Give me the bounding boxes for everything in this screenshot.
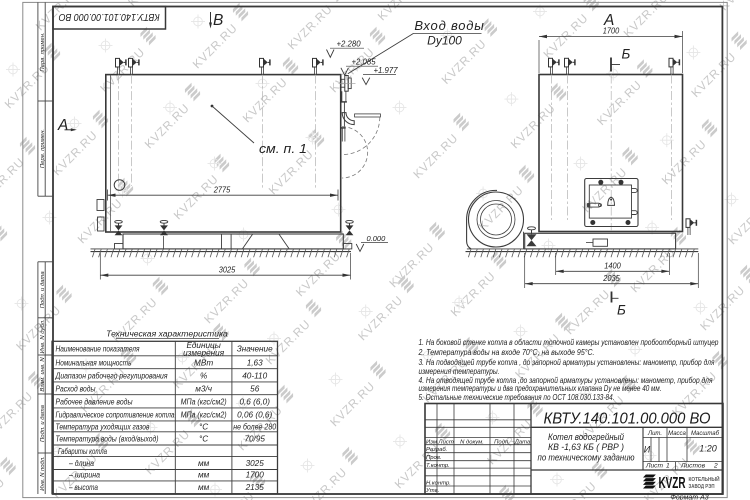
svg-text:Формат А3: Формат А3 xyxy=(670,495,708,500)
svg-text:Лит.: Лит. xyxy=(647,431,662,437)
svg-text:1700: 1700 xyxy=(246,471,265,480)
svg-text:+2.280: +2.280 xyxy=(337,40,362,49)
svg-text:Н.контр.: Н.контр. xyxy=(426,480,451,486)
svg-text:KVZR.RU: KVZR.RU xyxy=(448,269,498,319)
svg-text:Рабочее давление воды: Рабочее давление воды xyxy=(56,397,133,406)
svg-text:Dy100: Dy100 xyxy=(427,34,462,48)
svg-text:N докум.: N докум. xyxy=(460,440,484,446)
svg-text:KVZR.RU: KVZR.RU xyxy=(142,101,192,151)
svg-text:KVZR.RU: KVZR.RU xyxy=(540,11,590,61)
svg-text:KVZR.RU: KVZR.RU xyxy=(171,172,221,222)
svg-text:+1.977: +1.977 xyxy=(374,66,399,75)
svg-text:МВт: МВт xyxy=(194,358,213,367)
svg-text:мм: мм xyxy=(198,471,210,480)
svg-text:KVZR.RU: KVZR.RU xyxy=(0,389,36,439)
svg-text:1:20: 1:20 xyxy=(699,444,717,454)
svg-text:не более 280: не более 280 xyxy=(233,423,276,432)
svg-text:1400: 1400 xyxy=(604,261,621,271)
svg-text:KVZR.RU: KVZR.RU xyxy=(628,245,678,295)
svg-text:5. Остальные технические треб: 5. Остальные технические требования по О… xyxy=(419,392,615,402)
svg-text:по техническому заданию: по техническому заданию xyxy=(538,453,635,463)
svg-text:Вход воды: Вход воды xyxy=(414,18,484,33)
svg-text:KVZR.RU: KVZR.RU xyxy=(240,75,290,125)
svg-text:Лист: Лист xyxy=(645,463,663,470)
svg-text:KVZR.RU: KVZR.RU xyxy=(97,45,147,95)
svg-text:KVZR.RU: KVZR.RU xyxy=(201,276,251,326)
svg-text:KVZR.RU: KVZR.RU xyxy=(285,2,335,52)
svg-text:МПа (кгс/см2): МПа (кгс/см2) xyxy=(181,411,227,420)
svg-text:KVZR.RU: KVZR.RU xyxy=(579,165,629,215)
svg-text:KVZR.RU: KVZR.RU xyxy=(327,45,377,95)
svg-text:Дата: Дата xyxy=(514,440,531,446)
svg-text:°С: °С xyxy=(199,435,208,444)
svg-text:3025: 3025 xyxy=(246,459,265,468)
svg-text:Масштаб: Масштаб xyxy=(691,431,720,437)
svg-text:Техническая характеристика: Техническая характеристика xyxy=(106,329,228,339)
svg-text:70/95: 70/95 xyxy=(244,435,265,444)
svg-text:0,06 (0,6): 0,06 (0,6) xyxy=(237,411,272,420)
svg-text:Расход воды: Расход воды xyxy=(56,384,96,393)
svg-text:Т.контр.: Т.контр. xyxy=(426,463,450,469)
svg-text:Перв. примен.: Перв. примен. xyxy=(40,32,46,71)
svg-text:Взам. инв. N: Взам. инв. N xyxy=(40,357,46,392)
svg-text:1,63: 1,63 xyxy=(247,358,263,367)
svg-text:KVZR.RU: KVZR.RU xyxy=(75,196,125,246)
svg-text:KVZR.RU: KVZR.RU xyxy=(327,379,377,429)
svg-text:KVZR: KVZR xyxy=(659,475,686,492)
svg-text:м3/ч: м3/ч xyxy=(195,384,212,393)
svg-text:Б: Б xyxy=(622,47,631,62)
svg-text:мм: мм xyxy=(198,459,210,468)
svg-text:Листов: Листов xyxy=(680,463,706,470)
svg-text:Наименование показателя: Наименование показателя xyxy=(56,345,141,354)
svg-text:1: 1 xyxy=(666,463,670,470)
svg-text:KVZR.RU: KVZR.RU xyxy=(293,249,343,299)
svg-text:KVZR.RU: KVZR.RU xyxy=(263,317,313,367)
svg-text:– высота: – высота xyxy=(68,483,98,492)
svg-text:2775: 2775 xyxy=(213,185,231,195)
svg-text:КВТУ.140.101.00.000 ВО: КВТУ.140.101.00.000 ВО xyxy=(544,411,711,428)
svg-text:ЗАВОД РЭП: ЗАВОД РЭП xyxy=(689,484,715,490)
svg-text:Подп. и дата: Подп. и дата xyxy=(40,404,46,442)
svg-text:Утв.: Утв. xyxy=(425,488,439,494)
svg-text:°С: °С xyxy=(199,423,208,432)
svg-text:КВ -1,63 КБ ( РВР ): КВ -1,63 КБ ( РВР ) xyxy=(548,442,624,452)
svg-text:А: А xyxy=(57,117,68,134)
svg-text:2. Температура воды на входе: 2. Температура воды на входе 70°С, на вы… xyxy=(418,347,595,357)
svg-text:KVZR.RU: KVZR.RU xyxy=(0,475,8,500)
svg-text:Единицыизмерения: Единицыизмерения xyxy=(183,341,225,357)
svg-text:Диапазон рабочего регулировани: Диапазон рабочего регулирования xyxy=(55,371,168,380)
svg-text:KVZR.RU: KVZR.RU xyxy=(508,101,558,151)
svg-text:Инв. N подл.: Инв. N подл. xyxy=(40,456,46,490)
svg-text:КВТУ.140.101.00.000 ВО: КВТУ.140.101.00.000 ВО xyxy=(59,11,160,22)
svg-text:Масса: Масса xyxy=(668,431,686,437)
svg-text:1. На боковой стенке котла в: 1. На боковой стенке котла в области топ… xyxy=(419,337,719,347)
svg-text:Температура уходящих газов: Температура уходящих газов xyxy=(56,423,151,432)
svg-text:Подп. и дата: Подп. и дата xyxy=(40,271,46,309)
svg-text:%: % xyxy=(200,371,207,380)
svg-text:Инв. N дубл.: Инв. N дубл. xyxy=(40,319,46,353)
svg-text:KVZR.RU: KVZR.RU xyxy=(50,128,100,178)
svg-text:Подп.: Подп. xyxy=(494,440,510,446)
svg-text:Изм.Лист: Изм.Лист xyxy=(426,440,454,446)
svg-text:Гидравлическое сопротивление к: Гидравлическое сопротивление котла xyxy=(56,411,175,420)
svg-text:Габариты котла: Габариты котла xyxy=(58,447,107,456)
svg-text:мм: мм xyxy=(198,483,210,492)
svg-text:KVZR.RU: KVZR.RU xyxy=(725,197,750,247)
svg-text:Котел водогрейный: Котел водогрейный xyxy=(548,432,624,442)
svg-text:3025: 3025 xyxy=(219,265,236,275)
svg-text:см. п. 1: см. п. 1 xyxy=(259,141,307,156)
svg-text:Температура воды (вход/выход): Температура воды (вход/выход) xyxy=(56,435,159,444)
svg-text:KVZR.RU: KVZR.RU xyxy=(355,293,405,343)
svg-text:KVZR.RU: KVZR.RU xyxy=(386,240,436,290)
svg-text:МПа (кгс/см2): МПа (кгс/см2) xyxy=(181,397,227,406)
svg-text:KVZR.RU: KVZR.RU xyxy=(549,479,599,500)
svg-text:KVZR.RU: KVZR.RU xyxy=(688,49,738,99)
svg-text:KVZR.RU: KVZR.RU xyxy=(125,0,175,9)
svg-text:И: И xyxy=(644,445,651,455)
svg-text:KVZR.RU: KVZR.RU xyxy=(594,77,644,127)
svg-text:Разраб.: Разраб. xyxy=(426,447,447,453)
svg-text:40-110: 40-110 xyxy=(242,371,267,380)
svg-text:56: 56 xyxy=(250,384,260,393)
svg-text:0.000: 0.000 xyxy=(367,234,387,243)
svg-text:Перв. примен.: Перв. примен. xyxy=(40,129,46,168)
svg-text:2: 2 xyxy=(713,463,718,470)
svg-text:2135: 2135 xyxy=(245,483,265,492)
svg-text:Б: Б xyxy=(617,303,626,318)
svg-text:2035: 2035 xyxy=(602,273,620,283)
svg-text:– длина: – длина xyxy=(68,459,94,468)
svg-text:– ширина: – ширина xyxy=(68,471,100,480)
svg-text:Значение: Значение xyxy=(237,345,273,354)
svg-text:Номинальная мощность: Номинальная мощность xyxy=(56,358,132,367)
svg-text:KVZR.RU: KVZR.RU xyxy=(562,287,612,337)
svg-text:KVZR.RU: KVZR.RU xyxy=(410,131,460,181)
svg-text:А: А xyxy=(603,12,614,29)
svg-text:Пров.: Пров. xyxy=(426,455,442,461)
svg-text:0,6 (6,0): 0,6 (6,0) xyxy=(239,397,270,406)
svg-text:КОТЕЛЬНЫЙ: КОТЕЛЬНЫЙ xyxy=(689,475,720,483)
svg-text:В: В xyxy=(213,12,223,29)
